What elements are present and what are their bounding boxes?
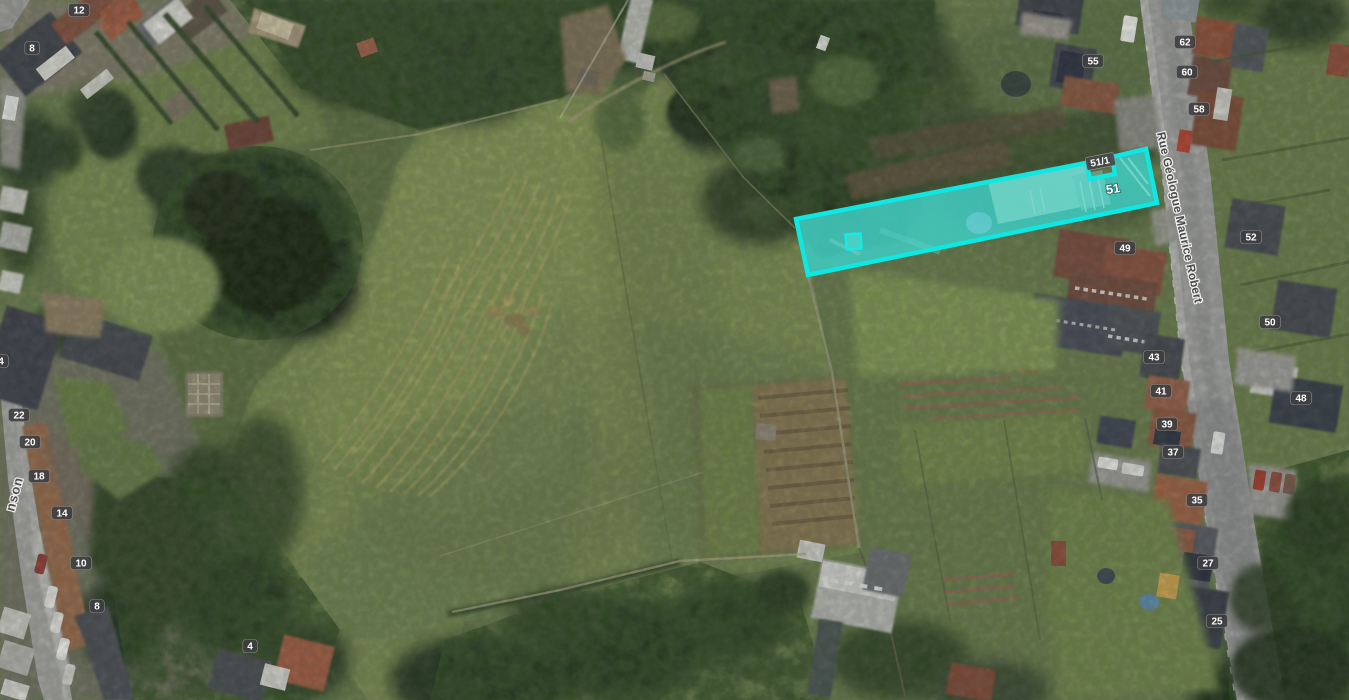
svg-text:27: 27 bbox=[1202, 559, 1214, 570]
svg-text:39: 39 bbox=[1161, 420, 1173, 431]
svg-text:8: 8 bbox=[94, 602, 100, 613]
svg-text:8: 8 bbox=[29, 44, 35, 55]
svg-text:12: 12 bbox=[73, 6, 85, 17]
svg-text:51: 51 bbox=[1105, 181, 1121, 197]
svg-text:20: 20 bbox=[24, 438, 36, 449]
svg-text:60: 60 bbox=[1181, 68, 1193, 79]
svg-text:48: 48 bbox=[1295, 394, 1307, 405]
svg-text:4: 4 bbox=[247, 642, 253, 653]
svg-text:10: 10 bbox=[75, 559, 87, 570]
svg-text:37: 37 bbox=[1167, 448, 1179, 459]
svg-text:49: 49 bbox=[1119, 244, 1131, 255]
svg-text:58: 58 bbox=[1193, 105, 1205, 116]
svg-text:52: 52 bbox=[1245, 233, 1257, 244]
svg-text:62: 62 bbox=[1179, 38, 1191, 49]
svg-text:43: 43 bbox=[1148, 353, 1160, 364]
svg-text:35: 35 bbox=[1191, 496, 1203, 507]
svg-text:4: 4 bbox=[0, 357, 4, 368]
svg-text:41: 41 bbox=[1155, 387, 1167, 398]
svg-text:25: 25 bbox=[1211, 617, 1223, 628]
svg-text:18: 18 bbox=[33, 472, 45, 483]
svg-text:55: 55 bbox=[1087, 57, 1099, 68]
svg-text:22: 22 bbox=[13, 411, 25, 422]
svg-text:14: 14 bbox=[56, 509, 68, 520]
svg-text:50: 50 bbox=[1264, 318, 1276, 329]
